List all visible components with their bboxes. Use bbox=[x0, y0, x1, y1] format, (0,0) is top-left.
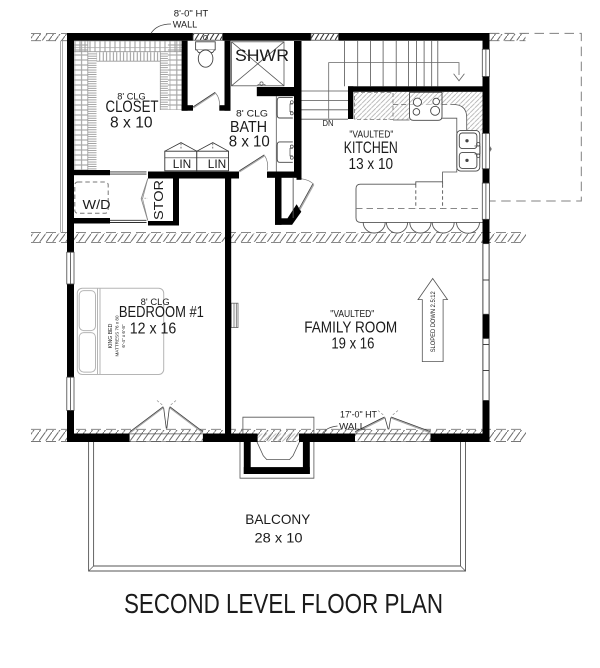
svg-text:8 x 10: 8 x 10 bbox=[110, 114, 153, 131]
svg-text:KITCHEN: KITCHEN bbox=[344, 139, 398, 157]
svg-text:SLOPED DOWN 2.5:12: SLOPED DOWN 2.5:12 bbox=[430, 291, 437, 352]
svg-text:28 x 10: 28 x 10 bbox=[255, 529, 303, 545]
svg-text:DN: DN bbox=[323, 119, 334, 128]
svg-text:17'-0" HT: 17'-0" HT bbox=[340, 409, 377, 420]
svg-text:SHWR: SHWR bbox=[235, 47, 289, 65]
svg-text:8 x 10: 8 x 10 bbox=[229, 133, 270, 150]
svg-text:W/D: W/D bbox=[83, 197, 111, 212]
svg-text:LIN: LIN bbox=[208, 157, 227, 171]
svg-text:8'-0" HT: 8'-0" HT bbox=[174, 9, 209, 20]
svg-text:LIN: LIN bbox=[173, 157, 192, 171]
svg-text:19 x 16: 19 x 16 bbox=[331, 335, 374, 352]
svg-text:FAMILY ROOM: FAMILY ROOM bbox=[304, 320, 397, 337]
svg-text:STOR: STOR bbox=[151, 180, 166, 220]
svg-text:6'-4" x 6'-8": 6'-4" x 6'-8" bbox=[121, 324, 126, 348]
svg-text:BALCONY: BALCONY bbox=[245, 511, 311, 527]
svg-text:MATTRESS 76 x 80: MATTRESS 76 x 80 bbox=[115, 315, 120, 356]
svg-text:KING BED: KING BED bbox=[108, 323, 114, 348]
svg-text:8' CLG: 8' CLG bbox=[236, 109, 268, 119]
svg-text:WALL: WALL bbox=[339, 421, 365, 432]
svg-text:SECOND LEVEL FLOOR PLAN: SECOND LEVEL FLOOR PLAN bbox=[124, 588, 443, 619]
svg-text:12 x 16: 12 x 16 bbox=[130, 321, 177, 338]
svg-text:WALL: WALL bbox=[173, 19, 198, 30]
svg-text:BEDROOM #1: BEDROOM #1 bbox=[119, 304, 204, 321]
svg-text:13 x 10: 13 x 10 bbox=[349, 156, 394, 173]
svg-text:"VAULTED": "VAULTED" bbox=[330, 309, 374, 320]
